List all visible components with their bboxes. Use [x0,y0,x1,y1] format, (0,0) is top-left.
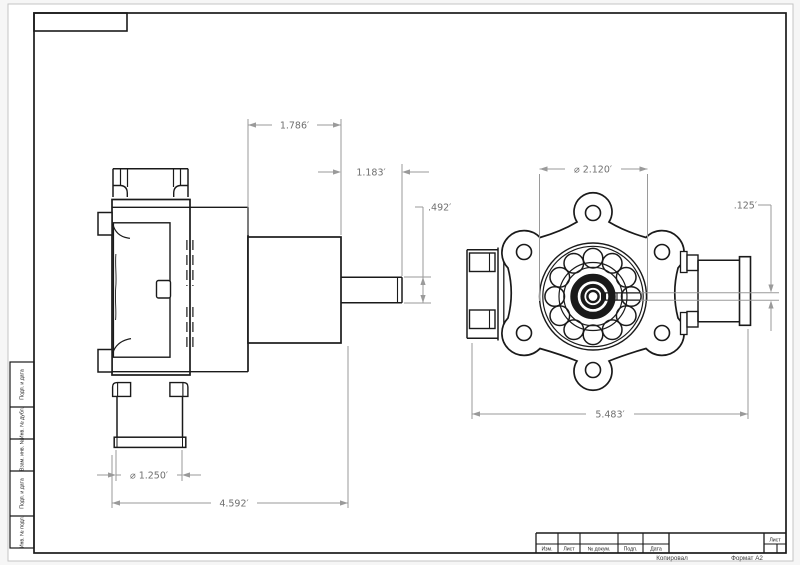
margin-cell-label: Инв. № подл. [19,516,25,548]
dim-shaft-diameter: .492′ [428,202,451,213]
dim-slot-width: .125′ [734,200,757,211]
margin-cell-label: Взам. инв. № [19,438,25,471]
margin-cell-label: Подп. и дата [19,478,25,509]
title-col-data: Дата [650,547,662,553]
margin-cell-label: Инв. № дубл. [19,407,25,439]
engineering-drawing: Подп. и дата Инв. № дубл. Взам. инв. № П… [0,0,800,565]
dim-housing-diameter: ⌀ 2.120′ [574,164,612,175]
dim-overall-length: 4.592′ [219,498,248,509]
bolt-hole [586,206,601,221]
dim-port-diameter: ⌀ 1.250′ [130,470,168,481]
title-col-docnum: № докум. [588,547,611,553]
dim-shaft-length: 1.183′ [356,167,385,178]
sheet-cell-label: Лист [769,538,781,544]
dim-motor-length: 1.786′ [280,120,309,131]
drawing-page: Подп. и дата Инв. № дубл. Взам. инв. № П… [0,0,800,565]
dim-overall-width: 5.483′ [595,409,624,420]
format-label: Формат А2 [731,555,763,562]
impeller-housing [540,243,647,350]
bolt-hole [586,363,601,378]
title-col-izm: Изм. [541,547,552,553]
bolt-hole [517,326,532,341]
bolt-hole [655,326,670,341]
bolt-hole [655,245,670,260]
title-col-list: Лист [563,547,575,553]
bolt-hole [517,245,532,260]
copied-by-label: Копировал [656,555,688,562]
margin-cell-label: Подп. и дата [19,369,25,400]
motor-outline [248,237,341,343]
title-col-podp: Подп. [624,547,638,553]
